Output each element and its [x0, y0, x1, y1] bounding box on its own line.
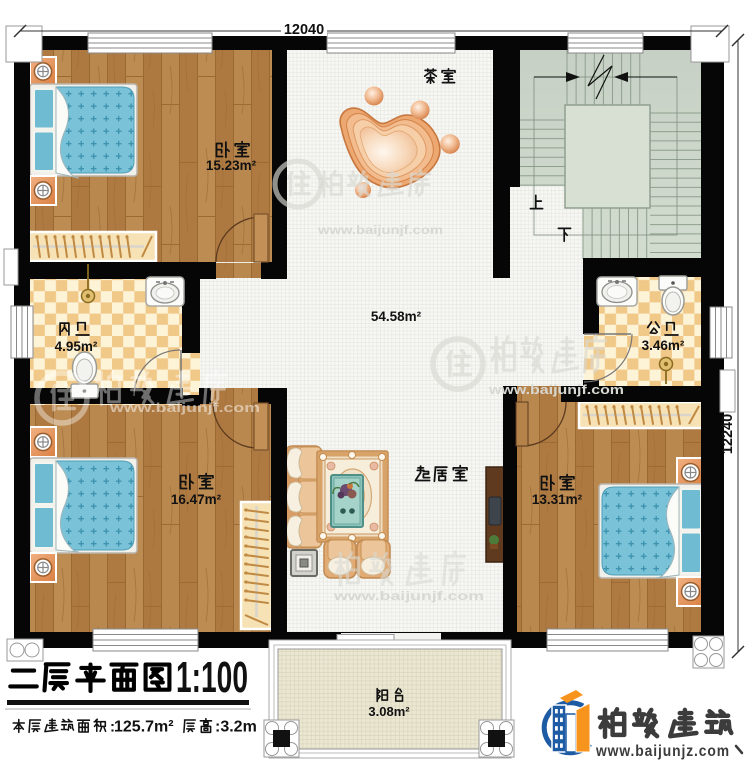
svg-text:54.58m²: 54.58m²	[371, 309, 422, 324]
svg-text:12240: 12240	[720, 414, 736, 454]
svg-text:www.baijunjf.com: www.baijunjf.com	[488, 383, 624, 397]
svg-text:15.23m²: 15.23m²	[206, 158, 257, 173]
svg-text:16.47m²: 16.47m²	[171, 492, 222, 507]
svg-text:www.baijunjz.com: www.baijunjz.com	[595, 743, 730, 760]
svg-text:13.31m²: 13.31m²	[532, 492, 583, 507]
svg-text:1:100: 1:100	[176, 653, 248, 702]
svg-text:www.baijunjf.com: www.baijunjf.com	[333, 589, 484, 603]
svg-text:125.7m²: 125.7m²	[114, 719, 174, 736]
svg-text:3.46m²: 3.46m²	[642, 338, 685, 353]
svg-text:www.baijunjf.com: www.baijunjf.com	[109, 400, 260, 415]
svg-text:3.08m²: 3.08m²	[368, 704, 410, 719]
svg-text:4.95m²: 4.95m²	[55, 339, 98, 354]
svg-text:www.baijunjf.com: www.baijunjf.com	[317, 223, 443, 237]
svg-text::3.2m: :3.2m	[215, 719, 257, 736]
svg-text:12040: 12040	[284, 22, 324, 38]
